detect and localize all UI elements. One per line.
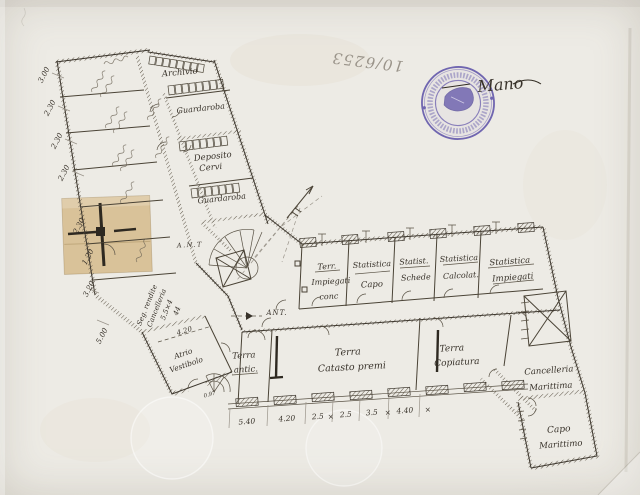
label-room1-3: conc [319, 291, 339, 301]
x-braced-closet [216, 250, 251, 287]
dim-lowerleft-1: 5.00 [94, 326, 110, 345]
dim-sep-0: × [327, 412, 334, 421]
dim-bottom-4: 3.5 [366, 408, 379, 418]
label-room3-1: Statist. [399, 256, 429, 267]
label-deposito-2: Cervi [199, 162, 223, 174]
dim-sep-1: × [384, 408, 391, 417]
paper-watermark-circle [131, 397, 213, 479]
ant-marker-triangle [246, 312, 253, 320]
label-capo-2: Marittimo [538, 439, 583, 452]
dim-bottom-1: 4.20 [277, 413, 296, 423]
dim-bottom-2: 2.5 [311, 412, 325, 422]
floor-plan-drawing: Archivio Guardaroba Deposito Cervi Guard… [0, 0, 640, 495]
dim-left-2: 2.30 [48, 131, 64, 151]
threshold-dim-label: 0.97 [203, 390, 217, 399]
label-room3-2: Schede [401, 272, 431, 283]
svg-text:44: 44 [171, 305, 182, 317]
capo-room-walls [517, 402, 531, 468]
label-antic-1: Terra [232, 350, 256, 361]
label-cancelleria-1: Cancelleria [524, 364, 574, 377]
paper-watermark-circle [306, 410, 382, 486]
label-room2-2: Capo [361, 279, 384, 290]
dim-bottom-3: 2.5 [339, 410, 353, 420]
corner-pencil-mark [22, 8, 26, 26]
label-copiatura-1: Terra [439, 343, 464, 354]
ant-upper-label: A.N.T [176, 240, 203, 249]
label-capo-1: Capo [547, 424, 572, 436]
vestibule-dim-label: 4.20 [175, 325, 194, 338]
dim-bottom-0: 5.40 [238, 416, 256, 426]
pasted-paper-patch [62, 195, 153, 274]
dim-left-0: 3.00 [36, 65, 52, 84]
label-room2-1: Statistica [352, 259, 391, 270]
label-catasto-2: Catasto premi [318, 360, 387, 375]
signature-text: Mano [476, 73, 524, 96]
office-stamp [417, 62, 498, 143]
label-room4-2: Calcolat. [443, 270, 479, 281]
label-room1-1: Terr. [317, 262, 336, 272]
label-room1-2: Impiegati [310, 276, 351, 287]
ant-lower-label: ANT. [265, 309, 287, 317]
scanned-floor-plan-sheet: Archivio Guardaroba Deposito Cervi Guard… [0, 0, 640, 495]
label-room5-2: Impiegati [491, 272, 534, 285]
label-catasto-1: Terra [335, 346, 362, 358]
dim-left-1: 2.30 [41, 98, 57, 118]
label-archivio: Archivio [161, 66, 199, 79]
annotations: A.N.T ANT. Seg. rendite Cancelleria 5.5×… [135, 240, 287, 399]
label-room5-1: Statistica [489, 256, 530, 269]
label-copiatura-2: Copiatura [434, 357, 480, 369]
paper-edge-fold [626, 28, 630, 472]
dim-sep-2: × [424, 405, 431, 414]
north-arrow [287, 186, 313, 218]
dim-left-3: 2.30 [55, 163, 71, 183]
dim-bottom-5: 4.40 [395, 405, 414, 415]
label-guardaroba-upper: Guardaroba [176, 101, 225, 115]
